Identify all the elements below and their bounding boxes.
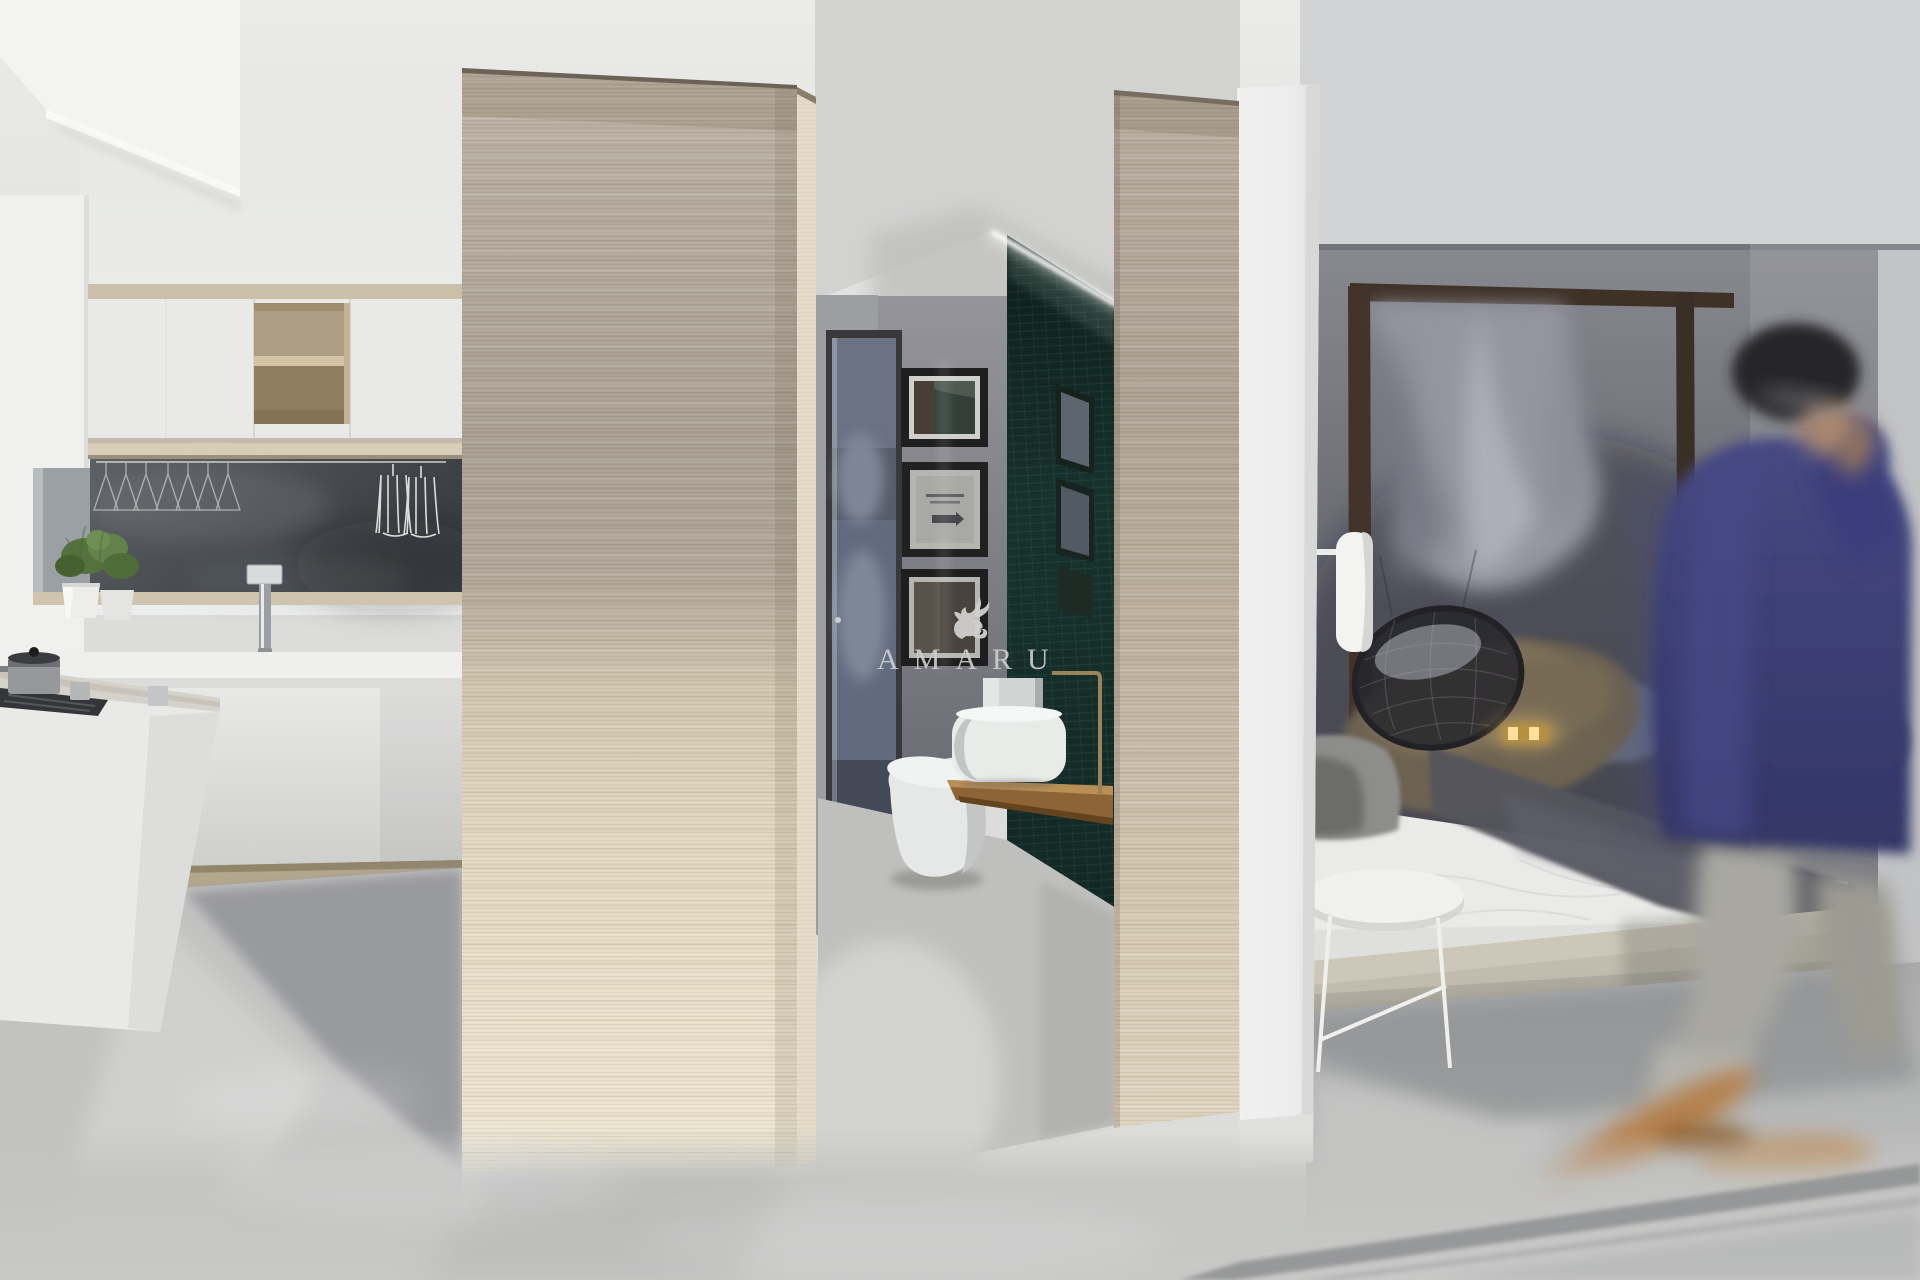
svg-text:AMARU: AMARU xyxy=(877,643,1064,676)
